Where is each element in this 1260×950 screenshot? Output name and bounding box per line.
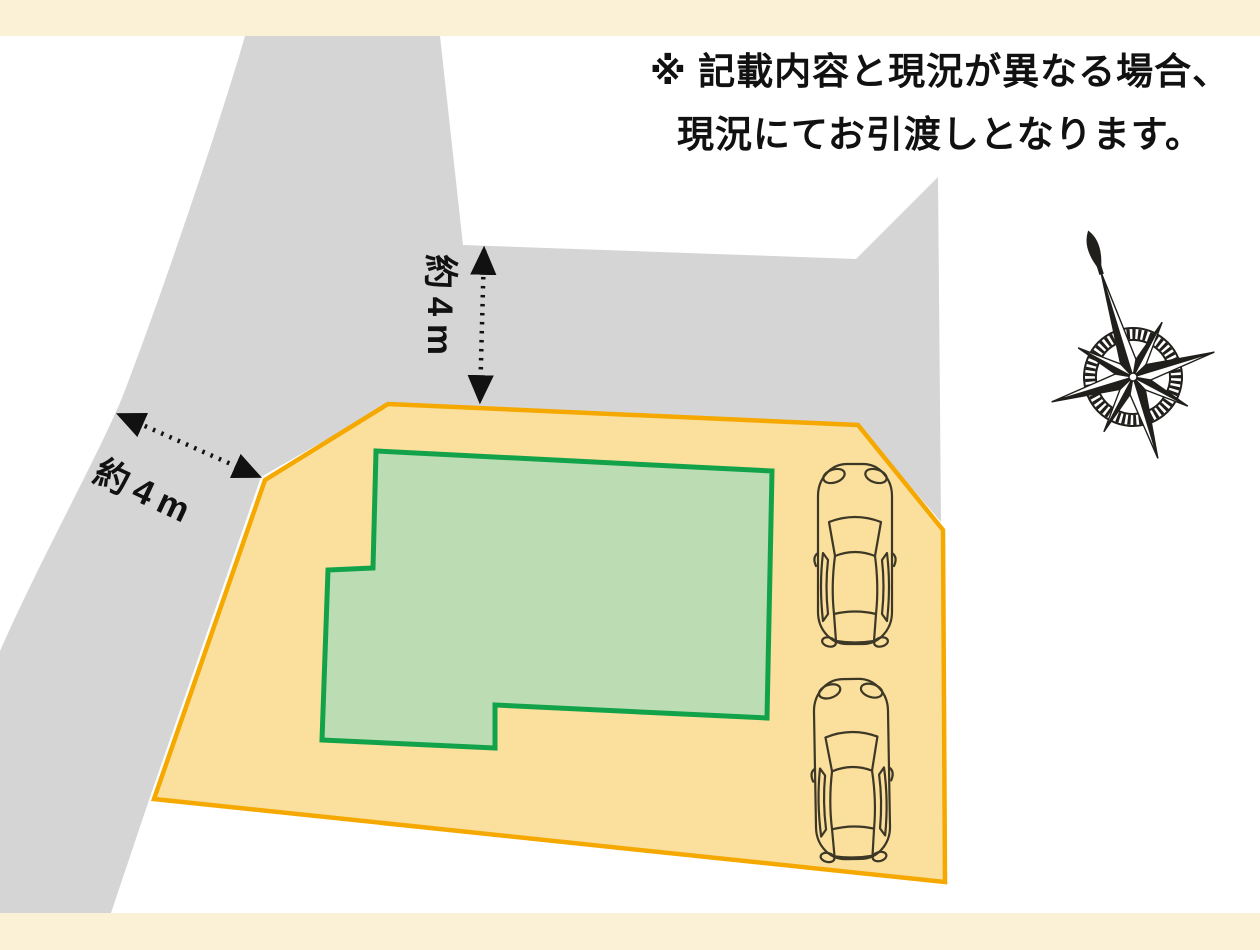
north-road-width-label: 約4m <box>417 254 468 363</box>
building-footprint <box>322 451 772 748</box>
compass-star <box>1007 207 1239 483</box>
disclaimer-line-1: ※ 記載内容と現況が異なる場合、 <box>615 40 1260 103</box>
compass-rose-icon <box>1007 207 1239 483</box>
disclaimer-note: ※ 記載内容と現況が異なる場合、 現況にてお引渡しとなります。 <box>615 40 1260 166</box>
disclaimer-line-2: 現況にてお引渡しとなります。 <box>615 103 1260 166</box>
site-plan-page: ※ 記載内容と現況が異なる場合、 現況にてお引渡しとなります。 約4m 約4m <box>0 0 1260 950</box>
